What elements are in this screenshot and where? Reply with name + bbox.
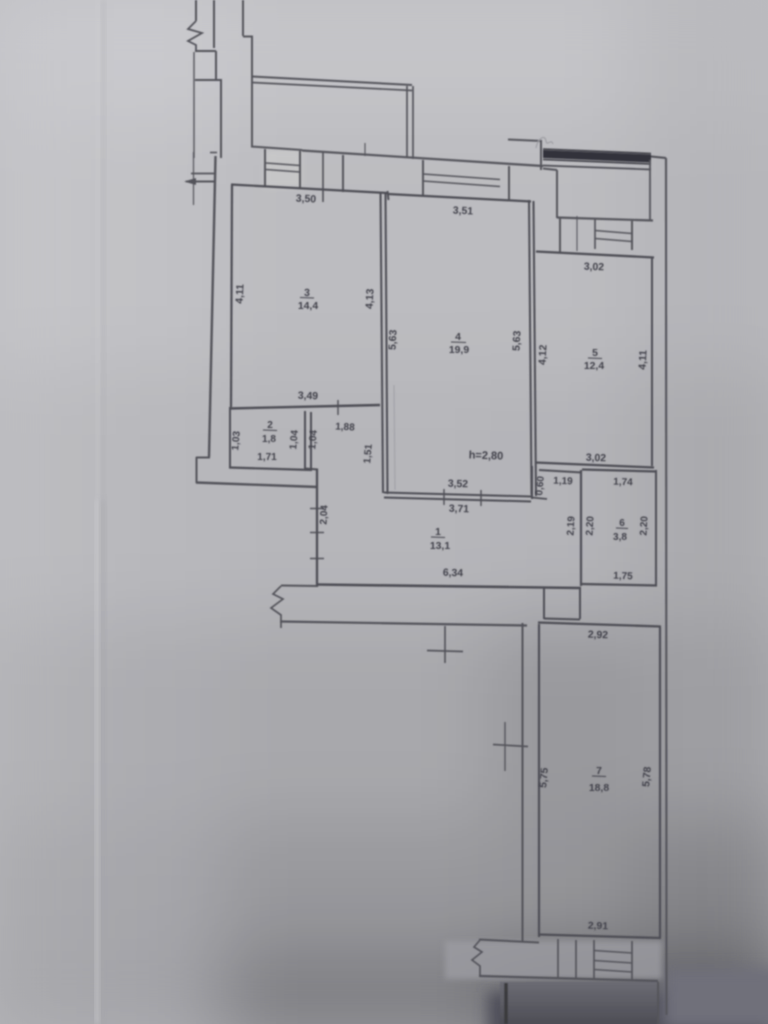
- svg-text:5,78: 5,78: [641, 766, 654, 787]
- svg-text:6: 6: [619, 518, 625, 529]
- svg-text:1,51: 1,51: [362, 443, 375, 464]
- svg-text:6,34: 6,34: [443, 568, 464, 580]
- svg-text:3,49: 3,49: [298, 391, 319, 403]
- svg-text:3,52: 3,52: [448, 479, 469, 491]
- svg-text:2,20: 2,20: [585, 515, 597, 535]
- svg-text:1,74: 1,74: [613, 477, 633, 489]
- svg-text:1,04: 1,04: [288, 429, 301, 450]
- svg-text:h=2,80: h=2,80: [468, 449, 503, 462]
- svg-text:5,63: 5,63: [387, 329, 399, 350]
- svg-text:4,11: 4,11: [234, 284, 246, 304]
- svg-text:3,02: 3,02: [586, 453, 607, 465]
- svg-text:2,91: 2,91: [588, 921, 609, 933]
- svg-text:13,1: 13,1: [430, 541, 450, 552]
- svg-text:18,8: 18,8: [589, 783, 609, 794]
- svg-text:3,8: 3,8: [613, 532, 627, 543]
- svg-text:3,51: 3,51: [453, 205, 474, 217]
- svg-text:4,12: 4,12: [537, 344, 549, 365]
- svg-text:2,04: 2,04: [319, 504, 331, 524]
- svg-text:5,75: 5,75: [538, 767, 551, 788]
- svg-text:1,03: 1,03: [230, 430, 243, 451]
- svg-text:14,4: 14,4: [298, 301, 318, 312]
- svg-text:1,75: 1,75: [613, 571, 633, 583]
- svg-text:12,4: 12,4: [584, 361, 604, 372]
- svg-text:19,9: 19,9: [449, 345, 469, 356]
- svg-text:4,11: 4,11: [637, 350, 649, 370]
- svg-text:1,19: 1,19: [553, 476, 573, 488]
- svg-text:2: 2: [267, 420, 273, 431]
- svg-text:1,04: 1,04: [307, 429, 320, 450]
- svg-text:0,60: 0,60: [534, 475, 547, 496]
- svg-text:3,02: 3,02: [584, 262, 605, 274]
- svg-text:3,50: 3,50: [296, 193, 317, 205]
- svg-text:1: 1: [435, 527, 441, 538]
- svg-text:5,63: 5,63: [511, 330, 523, 351]
- svg-text:4: 4: [455, 332, 461, 343]
- svg-text:3,71: 3,71: [449, 504, 470, 516]
- svg-text:1,88: 1,88: [335, 421, 355, 433]
- svg-text:2,92: 2,92: [588, 630, 609, 642]
- svg-text:2,20: 2,20: [639, 515, 651, 535]
- svg-text:1,8: 1,8: [262, 434, 276, 445]
- svg-text:4,13: 4,13: [364, 288, 376, 309]
- svg-text:5: 5: [592, 348, 598, 359]
- svg-text:1,71: 1,71: [257, 452, 277, 463]
- svg-text:7: 7: [596, 766, 602, 777]
- svg-text:2,19: 2,19: [566, 515, 578, 535]
